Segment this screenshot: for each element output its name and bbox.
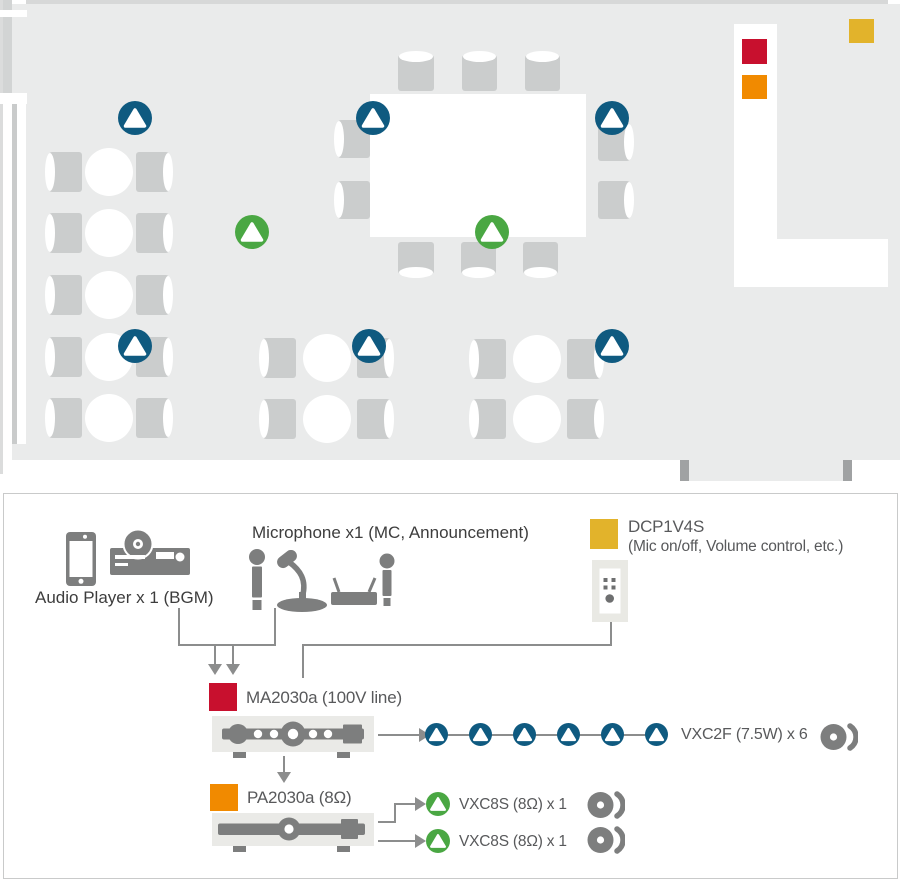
wire-bus-horizontal xyxy=(178,644,276,646)
arrowhead-vxc8s-1 xyxy=(415,797,426,811)
round-table xyxy=(85,271,133,319)
chair xyxy=(473,399,506,439)
ma2030a-label: MA2030a (100V line) xyxy=(246,688,402,708)
chair xyxy=(49,337,82,377)
chair xyxy=(525,55,560,91)
dcp1v4s-location-marker xyxy=(849,19,874,43)
vxc2f-speaker-icon xyxy=(645,723,668,746)
chair xyxy=(523,242,558,274)
chair xyxy=(473,339,506,379)
counter-horizontal xyxy=(734,239,888,287)
round-table xyxy=(85,148,133,196)
door-post-right xyxy=(843,460,852,481)
wall-panel-icon xyxy=(592,560,628,622)
left-walkway xyxy=(17,104,26,444)
ma2030a-swatch xyxy=(209,683,237,711)
chair xyxy=(398,55,434,91)
microphone-label: Microphone x1 (MC, Announcement) xyxy=(252,523,529,543)
vxc8s-speaker-icon xyxy=(426,829,450,853)
chair xyxy=(338,181,370,219)
chair xyxy=(263,399,296,439)
vxc2f-speaker-icon xyxy=(513,723,536,746)
wire-dcp-down xyxy=(610,622,612,646)
wireless-mic-set-icon xyxy=(331,552,395,608)
doorway-floor xyxy=(689,460,843,481)
dcp1v4s-description: (Mic on/off, Volume control, etc.) xyxy=(628,538,843,556)
round-table xyxy=(303,395,351,443)
surface-speaker-icon xyxy=(235,215,269,249)
ceiling-speaker-icon xyxy=(595,101,629,135)
chair xyxy=(49,152,82,192)
wire-input-a xyxy=(214,646,216,664)
round-table xyxy=(85,209,133,257)
wire-pa-out2 xyxy=(378,840,419,842)
pa2030a-label: PA2030a (8Ω) xyxy=(247,788,352,808)
wire-pa-out1-b xyxy=(394,803,396,823)
pa2030a-location-marker xyxy=(742,75,767,99)
page: Audio Player x 1 (BGM) Microphone x1 (MC… xyxy=(0,0,900,880)
chair xyxy=(598,181,630,219)
arrowhead-vxc8s-2 xyxy=(415,834,426,848)
audio-player-label: Audio Player x 1 (BGM) xyxy=(35,588,214,608)
chair xyxy=(136,152,169,192)
surface-speaker-product-icon xyxy=(587,790,625,820)
chair xyxy=(398,242,434,274)
surface-speaker-icon xyxy=(475,215,509,249)
handheld-mic-icon xyxy=(248,549,266,611)
equipment-diagram: Audio Player x 1 (BGM) Microphone x1 (MC… xyxy=(3,493,898,879)
chair xyxy=(263,338,296,378)
ceiling-speaker-icon xyxy=(595,329,629,363)
ceiling-speaker-icon xyxy=(118,329,152,363)
vxc2f-speaker-icon xyxy=(601,723,624,746)
wire-ma-to-pa xyxy=(283,756,285,772)
arrowhead-input-a xyxy=(208,664,222,675)
floor-plan xyxy=(0,0,900,490)
vxc2f-speaker-icon xyxy=(557,723,580,746)
dcp1v4s-model-label: DCP1V4S xyxy=(628,517,704,537)
vxc8s-speaker-icon xyxy=(426,792,450,816)
door-gap-2 xyxy=(0,93,27,104)
door-gap-1 xyxy=(0,10,27,17)
chair xyxy=(567,399,600,439)
door-post-left xyxy=(680,460,689,481)
chair xyxy=(49,213,82,253)
chair xyxy=(462,55,497,91)
dcp1v4s-swatch xyxy=(590,519,618,549)
arrowhead-input-b xyxy=(226,664,240,675)
ceiling-speaker-icon xyxy=(356,101,390,135)
pa2030a-amplifier-icon xyxy=(212,813,374,853)
ceiling-speaker-icon xyxy=(118,101,152,135)
chair xyxy=(136,213,169,253)
chair xyxy=(49,275,82,315)
ceiling-speaker-product-icon xyxy=(820,722,858,752)
wire-dcp-drop xyxy=(302,644,304,678)
smartphone-icon xyxy=(66,532,96,586)
wire-input-b xyxy=(232,646,234,664)
surface-speaker-product-icon xyxy=(587,825,625,855)
chair xyxy=(357,399,390,439)
round-table xyxy=(85,394,133,442)
wire-dcp-horizontal xyxy=(302,644,612,646)
gooseneck-mic-icon xyxy=(276,550,332,612)
vxc2f-label: VXC2F (7.5W) x 6 xyxy=(681,726,808,744)
pa2030a-swatch xyxy=(210,784,238,811)
ceiling-speaker-icon xyxy=(352,329,386,363)
chair xyxy=(49,398,82,438)
ma2030a-location-marker xyxy=(742,39,767,64)
round-table xyxy=(513,395,561,443)
top-wall xyxy=(26,0,888,4)
vxc2f-speaker-icon xyxy=(469,723,492,746)
arrowhead-pa xyxy=(277,772,291,783)
cd-player-icon xyxy=(110,529,190,575)
wire-audio-down xyxy=(178,608,180,646)
chair xyxy=(136,398,169,438)
vxc8s-label-1: VXC8S (8Ω) x 1 xyxy=(459,796,567,814)
round-table xyxy=(513,335,561,383)
wire-ma-to-vxc2f xyxy=(378,734,423,736)
vxc8s-label-2: VXC8S (8Ω) x 1 xyxy=(459,833,567,851)
vxc2f-speaker-icon xyxy=(425,723,448,746)
wire-mic-down xyxy=(274,608,276,646)
round-table xyxy=(303,334,351,382)
ma2030a-amplifier-icon xyxy=(212,716,374,760)
chair xyxy=(136,275,169,315)
